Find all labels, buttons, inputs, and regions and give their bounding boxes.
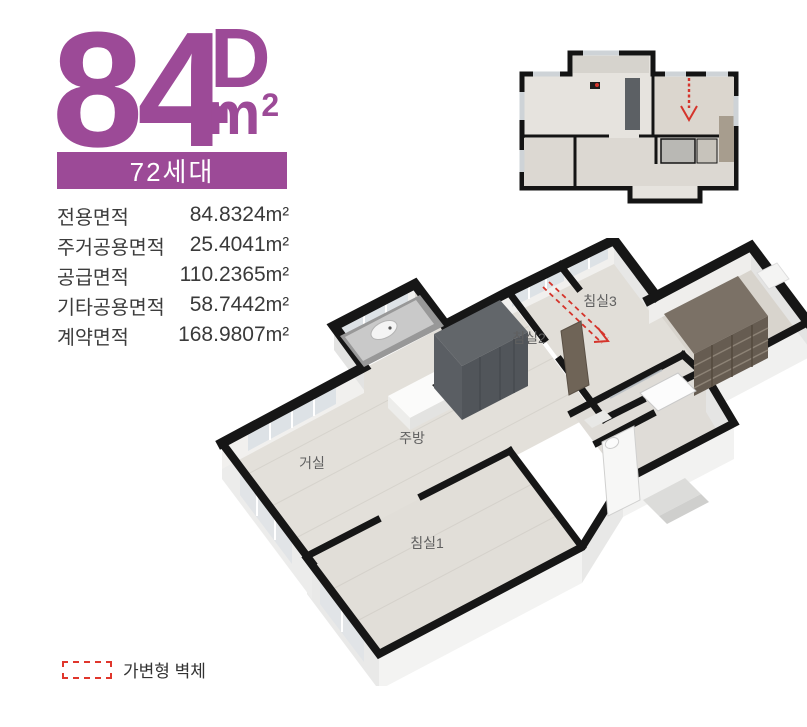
area-label: 기타공용면적: [57, 291, 177, 320]
legend-label: 가변형 벽체: [123, 657, 206, 682]
table-row: 전용면적 84.8324m²: [57, 200, 289, 230]
area-label: 주거공용면적: [57, 231, 177, 260]
floorplan-brochure-page: { "unit": { "number": "84", "type_letter…: [0, 0, 807, 727]
keyplan-bath: [661, 139, 695, 163]
room-label-bedroom3: 침실3: [583, 293, 617, 309]
variable-wall-legend-swatch: [62, 661, 112, 679]
keyplan-stove-dot: [595, 83, 599, 87]
room-label-bedroom2: 침실2: [512, 330, 546, 346]
keyplan-bay: [573, 56, 649, 73]
room-label-bedroom1: 침실1: [410, 535, 444, 551]
area-label: 전용면적: [57, 201, 177, 230]
area-value: 84.8324m²: [190, 203, 289, 227]
keyplan-bath2: [697, 139, 717, 163]
keyplan-wardrobe: [719, 116, 734, 162]
unit-area-number: 84: [52, 8, 222, 172]
legend: 가변형 벽체: [62, 657, 206, 682]
area-label: 공급면적: [57, 261, 177, 290]
unit-exp: 2: [261, 87, 279, 123]
unit-m: m: [207, 80, 260, 147]
area-label: 계약면적: [57, 321, 177, 350]
keyplan-feature-wall: [625, 78, 640, 130]
unit-area-unit: m2: [207, 84, 279, 144]
key-plan-2d: [513, 38, 753, 208]
households-badge: 72세대: [57, 152, 287, 189]
floorplan-3d: 거실 주방 침실1 침실2 침실3: [212, 238, 807, 686]
room-label-kitchen: 주방: [399, 430, 425, 446]
room-label-living: 거실: [299, 455, 325, 471]
